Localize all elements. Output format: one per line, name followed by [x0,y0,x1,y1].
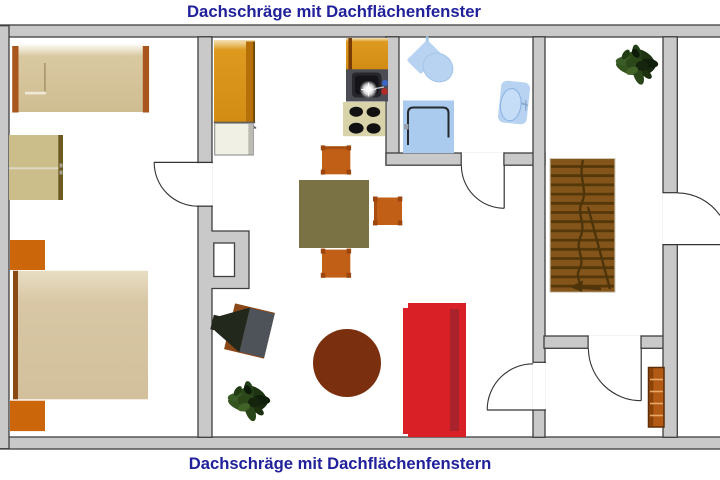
svg-text:Dachschräge mit Dachflächenfen: Dachschräge mit Dachflächenfenstern [189,454,491,473]
svg-text:Dachschräge mit Dachflächenfen: Dachschräge mit Dachflächenfenster [187,2,481,21]
